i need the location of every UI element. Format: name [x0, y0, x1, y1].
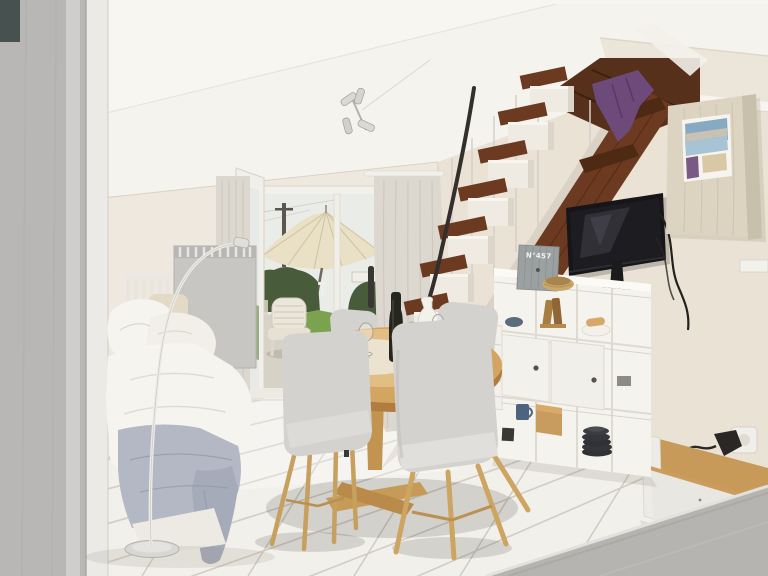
canvas-postcard	[682, 114, 732, 182]
photo-room-interior: N°457	[0, 0, 768, 576]
postcard-figure	[686, 156, 699, 179]
wall-canvas	[666, 94, 766, 242]
left-partition	[0, 0, 108, 576]
shelf-plate-stack	[582, 426, 612, 456]
chair-bracket	[344, 450, 349, 457]
partition-edge-frame	[86, 0, 108, 576]
door-keyhole-right	[591, 377, 596, 382]
bed-shadow	[85, 546, 275, 568]
scene-svg: N°457	[0, 0, 768, 576]
shelf-wood-riser	[536, 404, 562, 436]
shelf-blue-bowl	[505, 317, 523, 327]
distant-cottage	[352, 272, 378, 282]
crate-screw-1	[699, 499, 702, 502]
door-keyhole-left	[533, 365, 538, 370]
shelf-clock	[502, 428, 515, 442]
postcard-beach	[702, 153, 727, 173]
pole-crossarm	[275, 208, 293, 211]
partition-top-dark-object	[0, 0, 20, 42]
partition-highlight	[66, 0, 80, 576]
wall-conduit	[740, 260, 768, 272]
sliding-door-left	[498, 334, 549, 402]
room-number-sign-text: N°457	[526, 251, 552, 260]
patio-chair-back	[272, 298, 306, 332]
curtain-rod	[364, 171, 444, 176]
shelf-mid-item	[617, 376, 631, 386]
sliding-door-right	[551, 340, 604, 410]
headboard-rail	[124, 274, 172, 279]
door-handle	[368, 266, 374, 308]
